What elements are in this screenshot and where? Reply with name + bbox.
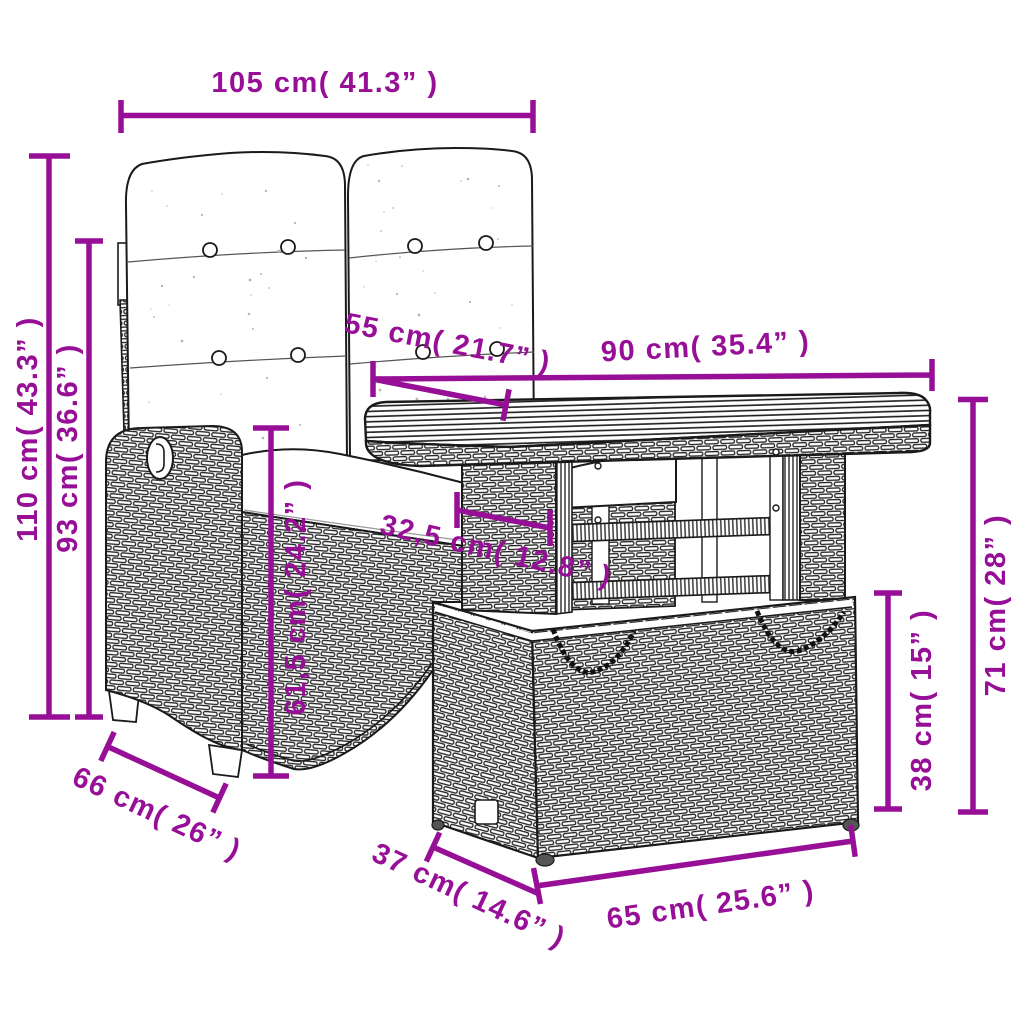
svg-text:71 cm( 28” ): 71 cm( 28” )	[980, 514, 1012, 696]
svg-text:93 cm( 36.6” ): 93 cm( 36.6” )	[52, 343, 84, 553]
svg-text:105 cm( 41.3” ): 105 cm( 41.3” )	[211, 67, 438, 99]
svg-text:110 cm( 43.3” ): 110 cm( 43.3” )	[12, 316, 44, 542]
svg-text:38 cm( 15” ): 38 cm( 15” )	[906, 609, 938, 791]
svg-text:61,5 cm( 24.2” ): 61,5 cm( 24.2” )	[280, 479, 312, 716]
